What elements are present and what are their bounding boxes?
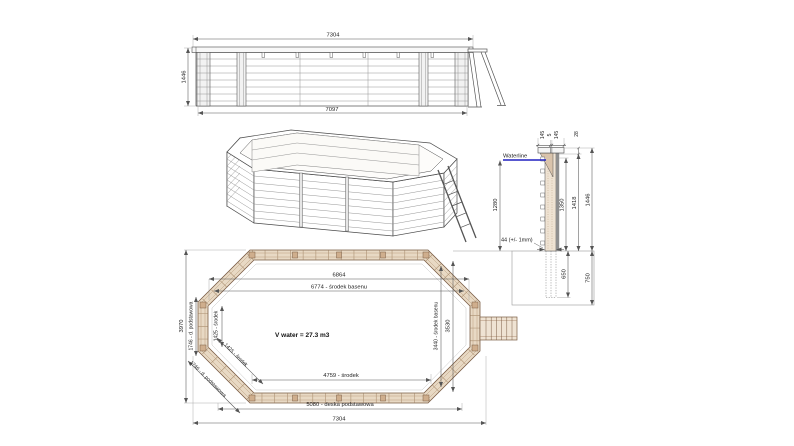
dim-length-top: 7304 bbox=[327, 33, 341, 39]
plank-profile-blocks bbox=[541, 157, 545, 245]
elevation-ladder bbox=[468, 49, 506, 107]
plan-ladder bbox=[480, 317, 517, 340]
dim-1425-diagonal: 1425 - środek bbox=[223, 342, 249, 368]
isometric-view bbox=[227, 130, 476, 242]
cap-rail-section bbox=[538, 148, 564, 154]
volume-label: V water = 27.3 m3 bbox=[275, 332, 330, 339]
dim-cap-145-right: 145 bbox=[554, 131, 560, 140]
buried-post bbox=[546, 251, 556, 298]
dim-1746-left: 1746 - d. podstawowa bbox=[189, 301, 195, 350]
dim-length-bottom: 7097 bbox=[326, 107, 339, 113]
dim-6864: 6864 bbox=[333, 273, 347, 279]
technical-drawing-canvas: 7304 7097 1446 Waterline bbox=[0, 0, 794, 446]
dim-height: 1446 bbox=[182, 71, 188, 84]
dim-650: 650 bbox=[562, 269, 568, 279]
dim-cap-5: 5 bbox=[547, 133, 553, 136]
dim-cap-145-left: 145 bbox=[540, 131, 546, 140]
dim-7304-plan: 7304 bbox=[333, 417, 347, 423]
dim-1350: 1350 bbox=[560, 199, 566, 212]
dim-3970: 3970 bbox=[179, 320, 185, 333]
plan-view: V water = 27.3 m3 6864 6774 - środek bas… bbox=[179, 250, 517, 425]
waterline-label: Waterline bbox=[503, 154, 527, 160]
dim-5080: 5080 - deska podstawowa bbox=[306, 402, 374, 408]
dim-1446: 1446 bbox=[586, 194, 592, 207]
dim-1280: 1280 bbox=[493, 199, 499, 212]
dim-3530: 3530 bbox=[446, 320, 452, 333]
dim-3440: 3440 - środek basenu bbox=[434, 302, 440, 351]
foundation-outline bbox=[512, 251, 594, 305]
side-elevation-view: 7304 7097 1446 bbox=[182, 33, 507, 117]
dim-4759: 4759 - środek bbox=[323, 373, 359, 379]
dim-6774: 6774 - środek basenu bbox=[311, 285, 367, 291]
dim-1425-left: 1425 - środek bbox=[214, 310, 220, 341]
note-44mm: 44 (+/- 1mm) bbox=[501, 238, 533, 244]
top-cap-rail bbox=[192, 47, 473, 53]
pool-drawing-svg: 7304 7097 1446 Waterline bbox=[0, 0, 794, 446]
dim-28: 28 bbox=[574, 131, 580, 137]
dim-750: 750 bbox=[586, 273, 592, 283]
dim-1418: 1418 bbox=[572, 197, 578, 210]
wall-cross-section-view: Waterline 145 5 145 28 1280 1350 1418 14… bbox=[453, 131, 595, 305]
